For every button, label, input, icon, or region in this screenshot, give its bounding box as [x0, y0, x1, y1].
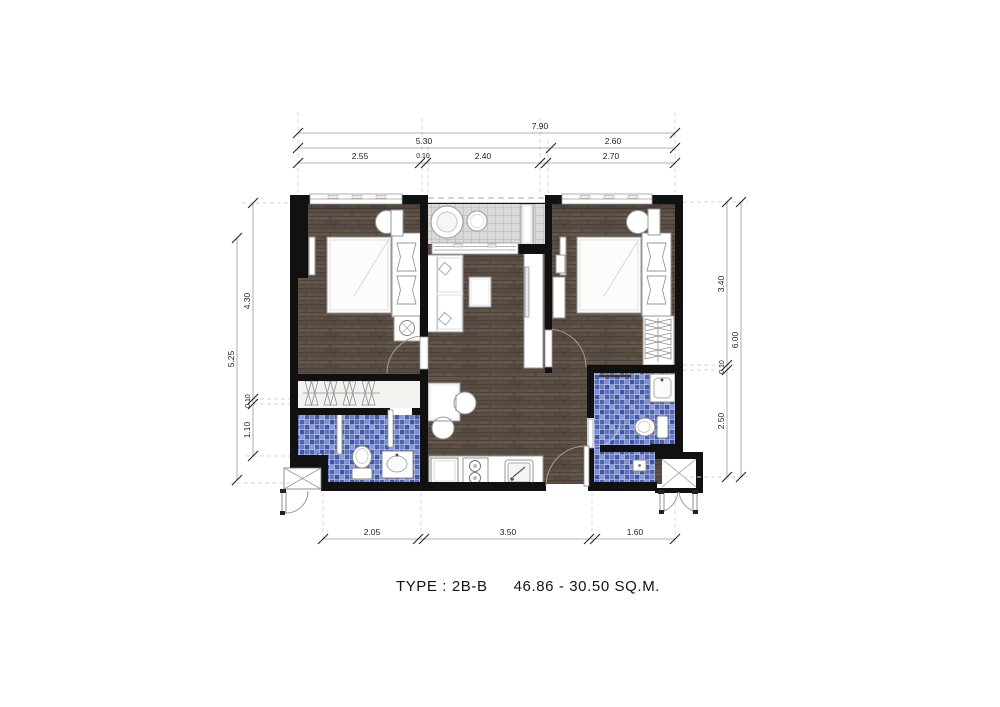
window-bedroom-1 — [310, 194, 402, 204]
dim-top-inner-2: 0.10 — [416, 153, 430, 160]
wall-left-jog — [290, 455, 328, 468]
ac-ledge-left — [280, 468, 321, 515]
door-leaf-bathroom-1 — [388, 410, 393, 447]
wall-shadow — [297, 204, 420, 209]
dim-top-inner-3: 2.40 — [475, 151, 492, 161]
wall-bottom-left — [321, 482, 546, 491]
wall-bottom-right — [588, 482, 657, 491]
plan-title: TYPE : 2B-B46.86 - 30.50 SQ.M. — [28, 578, 1000, 595]
wall-bath2-divider — [600, 445, 655, 452]
shower-partition — [337, 411, 342, 454]
coffee-table — [469, 277, 491, 307]
louver-door-swing — [286, 491, 308, 513]
dim-bottom-3: 1.60 — [627, 527, 644, 537]
bed-1 — [327, 237, 391, 313]
wall-ac-right — [696, 452, 703, 493]
toilet-2-tank — [657, 416, 668, 438]
wall-balcony-stub — [518, 244, 552, 254]
window-bedroom-2 — [562, 194, 652, 204]
wall-right — [675, 195, 683, 452]
wall-bedroom2-living — [545, 258, 552, 330]
door-leaf-bathroom-2 — [588, 419, 593, 448]
desk-chair-2 — [627, 211, 650, 234]
dim-right-inner-1: 3.40 — [716, 275, 726, 292]
louver-door-leaf — [282, 492, 286, 513]
door-leaf-bedroom-1 — [420, 337, 428, 369]
hinge — [693, 510, 698, 514]
dining-chair — [454, 392, 476, 414]
dim-top-mid-1: 5.30 — [416, 136, 433, 146]
wall-left-column — [290, 195, 308, 278]
wall-stub — [545, 367, 552, 373]
wall-left — [290, 278, 298, 458]
mirror — [309, 237, 315, 275]
louver-door-swing — [679, 492, 693, 511]
balcony-chair-cushion — [437, 212, 457, 232]
balcony-open-edge — [428, 194, 545, 203]
shower-drain-dot — [638, 464, 641, 467]
faucet — [510, 477, 514, 481]
door-leaf-bedroom-2 — [545, 330, 552, 367]
hinge — [280, 511, 285, 515]
dim-left-outer: 5.25 — [226, 350, 236, 367]
faucet — [661, 379, 664, 382]
bed-2 — [577, 237, 641, 313]
dim-top-total: 7.90 — [532, 121, 549, 131]
toilet-1-tank — [352, 468, 372, 479]
plan-type-label: TYPE : 2B-B — [396, 578, 488, 595]
louver-door-leaf — [693, 493, 697, 512]
dim-left-inner-1: 4.30 — [242, 292, 252, 309]
balcony-sliding-door — [432, 243, 518, 254]
wall-ac-top — [655, 452, 703, 459]
floorplan-drawing: 7.90 5.30 2.60 2.55 0.10 2.40 2.70 5.25 … — [0, 0, 1000, 707]
burner-center — [473, 464, 477, 468]
louver-door-swing — [664, 492, 678, 511]
dresser-2 — [553, 277, 565, 318]
wall-bath1-kitchen — [420, 369, 428, 485]
dim-left-inner-3: 1.10 — [242, 421, 252, 438]
refrigerator — [431, 458, 458, 484]
wall-shadow — [552, 204, 675, 209]
tv — [525, 267, 529, 317]
dim-bottom-2: 3.50 — [500, 527, 517, 537]
dim-right-inner-2: 0.10 — [719, 360, 726, 374]
desk-2 — [648, 209, 660, 235]
dim-right-outer: 6.00 — [730, 331, 740, 348]
dim-right-inner-3: 2.50 — [716, 412, 726, 429]
wall-bath2-top — [587, 365, 683, 373]
burner-center — [473, 476, 477, 480]
plan-area-label: 46.86 - 30.50 SQ.M. — [514, 578, 660, 595]
hinge — [658, 490, 664, 494]
dim-top-inner-4: 2.70 — [603, 151, 620, 161]
faucet — [396, 454, 399, 457]
toilet-1-bowl — [353, 446, 372, 468]
ac-ledge-right — [658, 459, 698, 514]
dim-left-inner-2: 0.10 — [245, 394, 252, 408]
dining-chair — [432, 417, 454, 439]
louver-door-leaf — [660, 493, 664, 512]
panel — [556, 255, 565, 273]
basin-1 — [387, 456, 407, 472]
desk-1 — [391, 210, 403, 236]
hinge — [692, 490, 698, 494]
wall-closet-top — [297, 374, 428, 381]
dim-top-inner-1: 2.55 — [352, 151, 369, 161]
dim-top-mid-2: 2.60 — [605, 136, 622, 146]
hinge — [280, 489, 286, 493]
hinge — [659, 510, 664, 514]
closet-floor — [297, 379, 420, 409]
dim-bottom-1: 2.05 — [364, 527, 381, 537]
wall-bedroom1-living — [420, 195, 428, 337]
floorplan-page: 7.90 5.30 2.60 2.55 0.10 2.40 2.70 5.25 … — [0, 0, 1000, 707]
